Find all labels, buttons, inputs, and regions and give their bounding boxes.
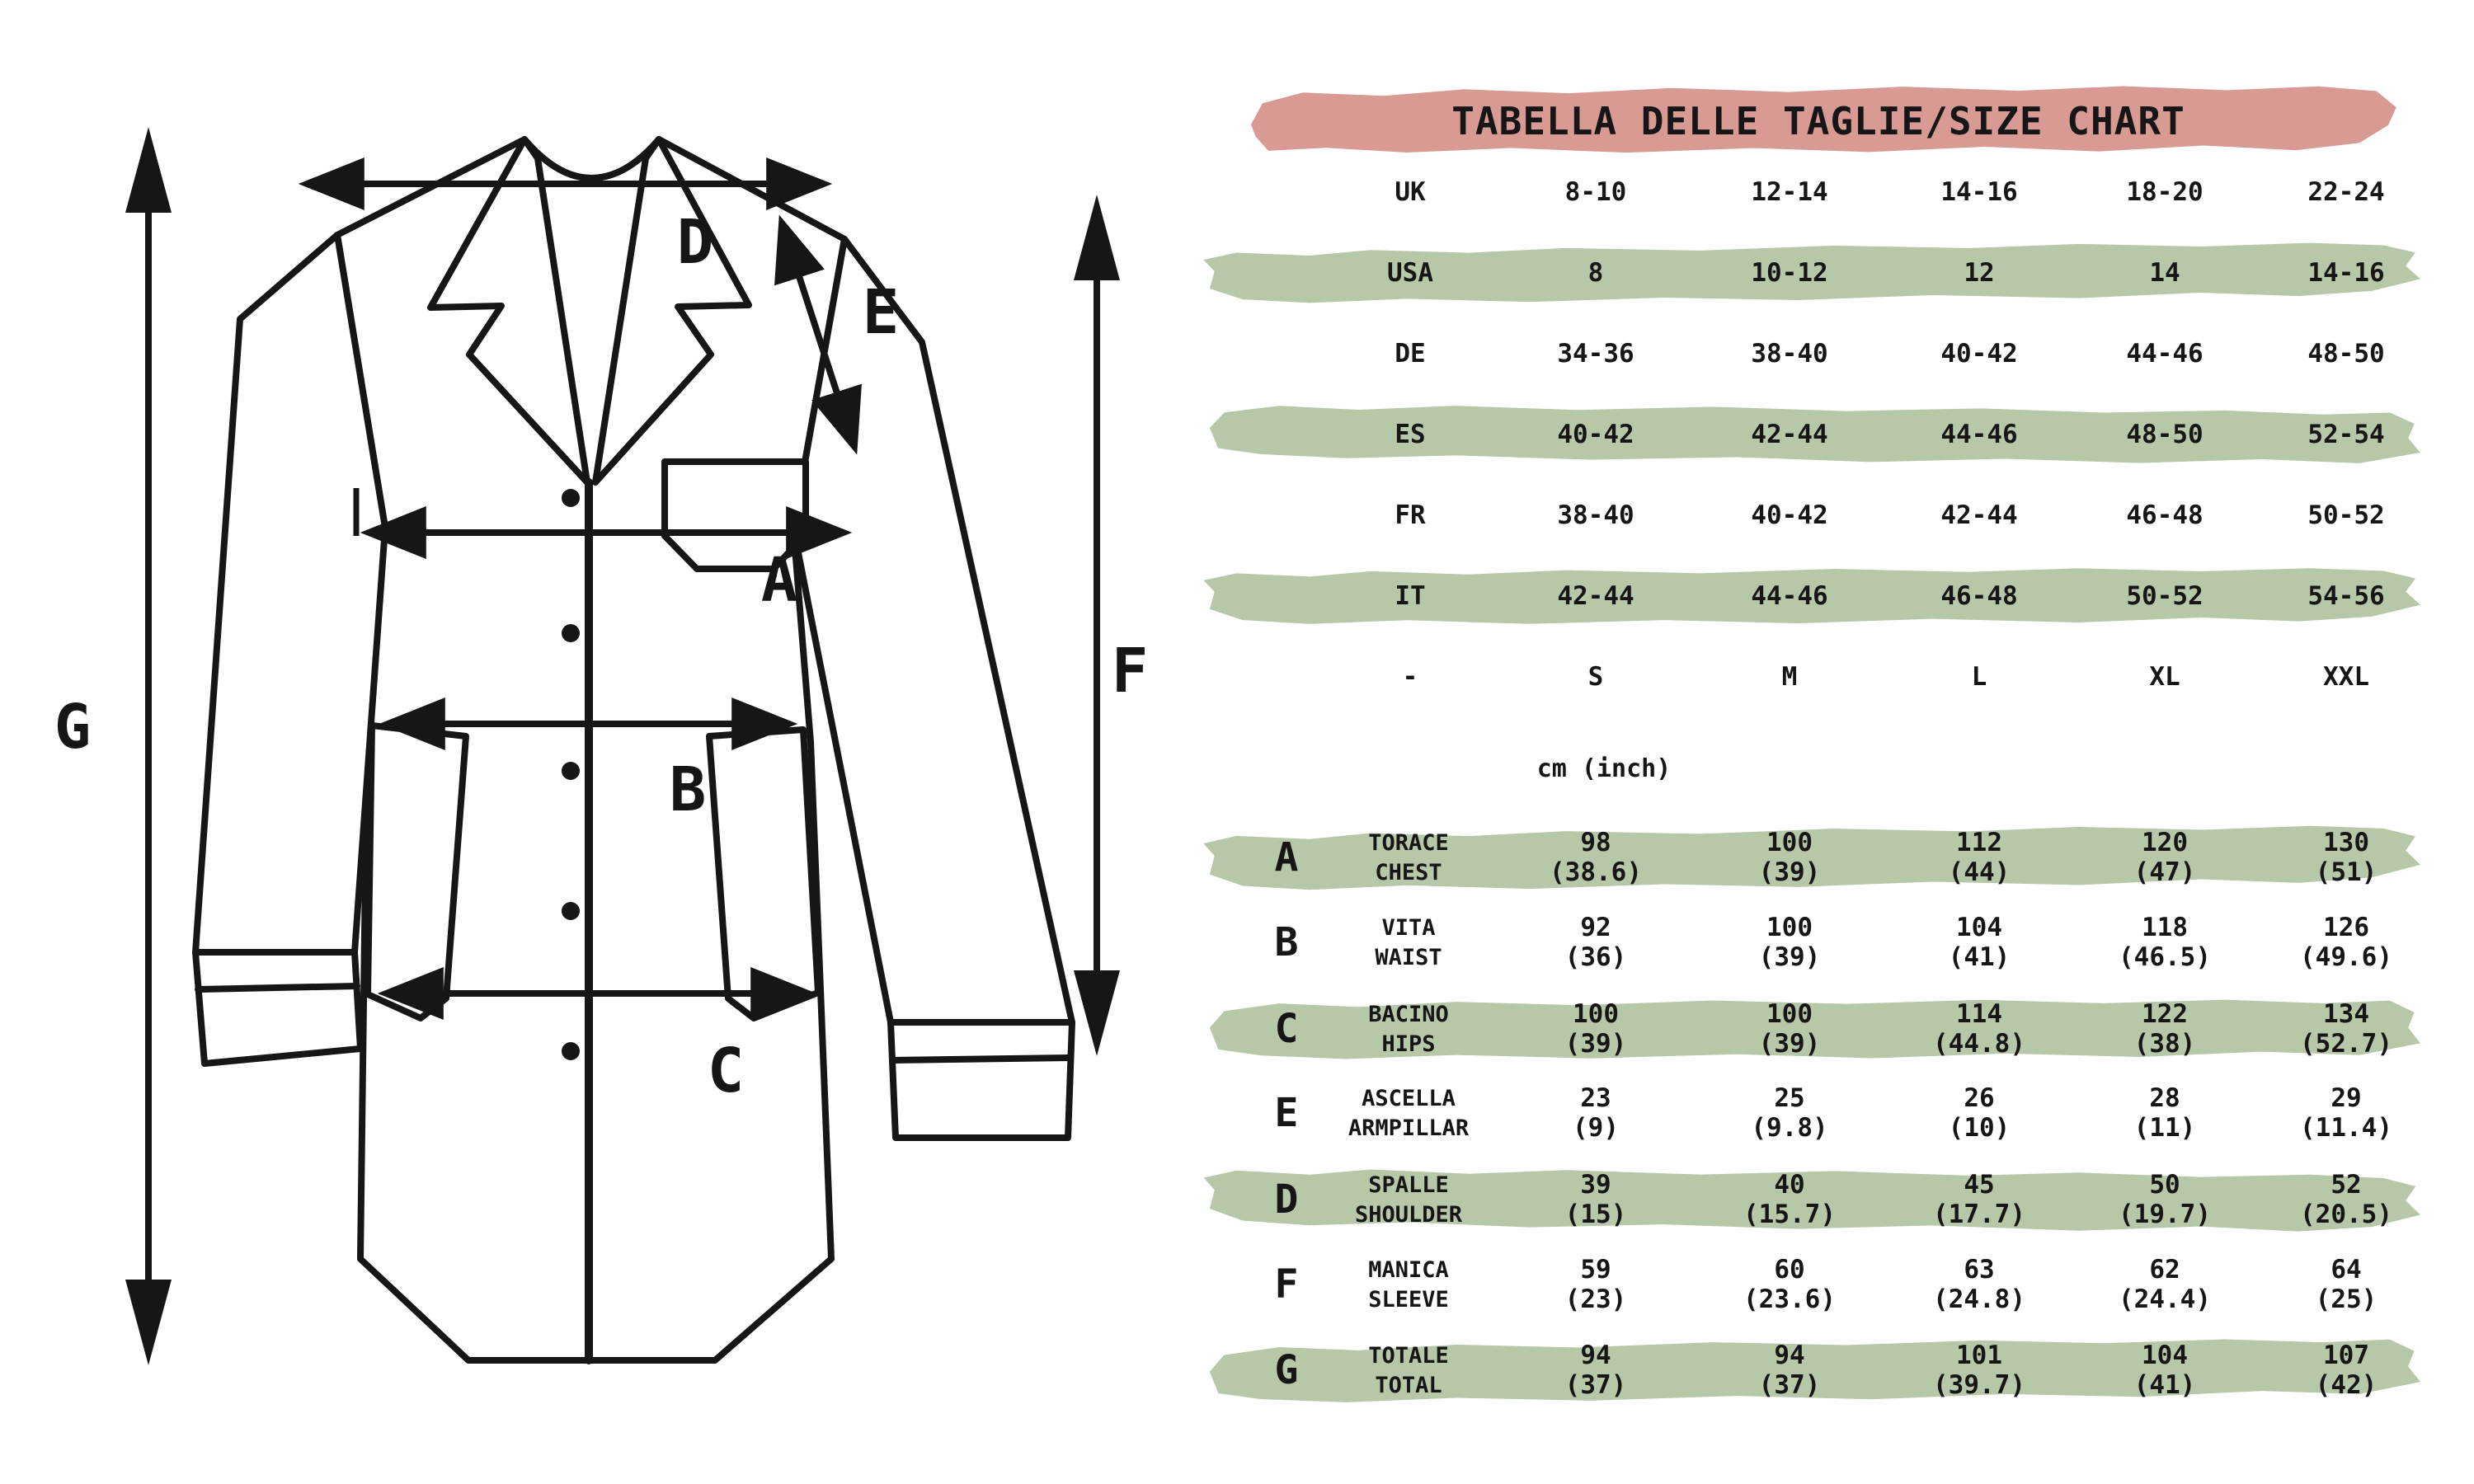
size-value: 48-50 <box>2074 405 2255 464</box>
measure-inch: (10) <box>1888 1113 2070 1144</box>
size-value: 14-16 <box>2255 243 2437 303</box>
measure-name-it: VITA <box>1326 913 1491 943</box>
size-row-label: IT <box>1344 566 1476 626</box>
garment-diagram <box>0 0 1221 1484</box>
size-value: 34-36 <box>1505 324 1686 383</box>
measure-name-en: SHOULDER <box>1326 1200 1491 1230</box>
measure-inch: (37) <box>1505 1370 1686 1401</box>
measure-inch: (11.4) <box>2255 1113 2437 1144</box>
measure-inch: (52.7) <box>2255 1029 2437 1059</box>
size-value: 42-44 <box>1505 566 1686 626</box>
size-value: XL <box>2074 647 2255 707</box>
measure-inch: (17.7) <box>1888 1200 2070 1230</box>
size-row-label: DE <box>1344 324 1476 383</box>
size-value: 44-46 <box>1699 566 1880 626</box>
measure-name-en: ARMPILLAR <box>1326 1113 1491 1144</box>
size-chart-panel: TABELLA DELLE TAGLIE/SIZE CHART UK 8-10 … <box>1188 0 2474 1484</box>
size-value: 38-40 <box>1505 486 1686 545</box>
measure-cm: 100 <box>1699 828 1880 858</box>
measure-cm: 107 <box>2255 1341 2437 1371</box>
button <box>562 902 580 920</box>
size-value: 40-42 <box>1505 405 1686 464</box>
measure-cm: 26 <box>1888 1083 2070 1114</box>
measure-inch: (23) <box>1505 1284 1686 1315</box>
diagram-label-D: D <box>656 204 735 280</box>
measure-inch: (39.7) <box>1888 1370 2070 1401</box>
button <box>562 489 580 507</box>
size-value: 44-46 <box>2074 324 2255 383</box>
measure-inch: (41) <box>2074 1370 2255 1401</box>
measure-inch: (41) <box>1888 942 2070 973</box>
measure-inch: (44.8) <box>1888 1029 2070 1059</box>
measure-cm: 28 <box>2074 1083 2255 1114</box>
measure-inch: (9.8) <box>1699 1113 1880 1144</box>
measure-name-it: TORACE <box>1326 828 1491 858</box>
size-row-uk: UK 8-10 12-14 14-16 18-20 22-24 <box>1188 162 2474 222</box>
measure-name-it: TOTALE <box>1326 1341 1491 1371</box>
chart-title: TABELLA DELLE TAGLIE/SIZE CHART <box>1245 87 2392 153</box>
measure-cm: 92 <box>1505 913 1686 943</box>
diagram-label-C: C <box>686 1033 765 1109</box>
measure-row-chest: A TORACE CHEST 98(38.6) 100(39) 112(44) … <box>1188 823 2474 892</box>
measure-cm: 25 <box>1699 1083 1880 1114</box>
size-value: L <box>1888 647 2070 707</box>
size-value: 46-48 <box>1888 566 2070 626</box>
measure-cm: 120 <box>2074 828 2255 858</box>
measure-cm: 100 <box>1699 913 1880 943</box>
left-cuff-seam <box>198 986 357 989</box>
measure-inch: (36) <box>1505 942 1686 973</box>
right-sleeve <box>793 239 1072 1022</box>
measure-row-waist: B VITA WAIST 92(36) 100(39) 104(41) 118(… <box>1188 908 2474 977</box>
measure-cm: 50 <box>2074 1170 2255 1200</box>
measure-name-en: TOTAL <box>1326 1370 1491 1401</box>
measure-cm: 62 <box>2074 1255 2255 1285</box>
measure-row-armpillar: E ASCELLA ARMPILLAR 23(9) 25(9.8) 26(10)… <box>1188 1078 2474 1148</box>
measure-inch: (24.8) <box>1888 1284 2070 1315</box>
measure-inch: (11) <box>2074 1113 2255 1144</box>
diagram-label-B: B <box>648 752 727 828</box>
measure-cm: 114 <box>1888 999 2070 1030</box>
measure-inch: (38) <box>2074 1029 2255 1059</box>
measure-inch: (46.5) <box>2074 942 2255 973</box>
measure-inch: (15) <box>1505 1200 1686 1230</box>
measure-row-sleeve: F MANICA SLEEVE 59(23) 60(23.6) 63(24.8)… <box>1188 1250 2474 1319</box>
measure-cm: 122 <box>2074 999 2255 1030</box>
measure-name-it: SPALLE <box>1326 1170 1491 1200</box>
size-row-label: ES <box>1344 405 1476 464</box>
size-value: 54-56 <box>2255 566 2437 626</box>
measure-cm: 104 <box>1888 913 2070 943</box>
size-value: 42-44 <box>1699 405 1880 464</box>
measure-cm: 100 <box>1505 999 1686 1030</box>
size-value: 48-50 <box>2255 324 2437 383</box>
button <box>562 1042 580 1060</box>
size-value: 14 <box>2074 243 2255 303</box>
measure-name-en: SLEEVE <box>1326 1284 1491 1315</box>
units-label: cm (inch) <box>1513 753 1695 786</box>
measure-cm: 112 <box>1888 828 2070 858</box>
measure-cm: 98 <box>1505 828 1686 858</box>
measure-cm: 29 <box>2255 1083 2437 1114</box>
size-value: 8 <box>1505 243 1686 303</box>
left-cuff <box>195 952 360 1064</box>
measure-cm: 63 <box>1888 1255 2070 1285</box>
measure-row-hips: C BACINO HIPS 100(39) 100(39) 114(44.8) … <box>1188 994 2474 1064</box>
size-row-international: - S M L XL XXL <box>1188 647 2474 707</box>
measure-cm: 59 <box>1505 1255 1686 1285</box>
size-value: 40-42 <box>1888 324 2070 383</box>
measure-letter: F <box>1245 1250 1328 1319</box>
size-value: 52-54 <box>2255 405 2437 464</box>
measure-inch: (39) <box>1505 1029 1686 1059</box>
left-hip-pocket <box>368 726 466 1018</box>
measure-inch: (49.6) <box>2255 942 2437 973</box>
size-value: 42-44 <box>1888 486 2070 545</box>
measure-letter: B <box>1245 908 1328 977</box>
measure-inch: (47) <box>2074 857 2255 888</box>
measure-letter: G <box>1245 1336 1328 1405</box>
size-value: 50-52 <box>2255 486 2437 545</box>
size-row-fr: FR 38-40 40-42 42-44 46-48 50-52 <box>1188 486 2474 545</box>
size-value: M <box>1699 647 1880 707</box>
measure-cm: 60 <box>1699 1255 1880 1285</box>
measure-cm: 134 <box>2255 999 2437 1030</box>
size-row-usa: USA 8 10-12 12 14 14-16 <box>1188 243 2474 303</box>
size-value: 38-40 <box>1699 324 1880 383</box>
measure-cm: 23 <box>1505 1083 1686 1114</box>
size-value: 18-20 <box>2074 162 2255 222</box>
measure-inch: (20.5) <box>2255 1200 2437 1230</box>
measure-inch: (25) <box>2255 1284 2437 1315</box>
size-row-es: ES 40-42 42-44 44-46 48-50 52-54 <box>1188 405 2474 464</box>
measure-cm: 39 <box>1505 1170 1686 1200</box>
diagram-label-G: G <box>33 689 112 765</box>
size-value: 8-10 <box>1505 162 1686 222</box>
measure-name-it: MANICA <box>1326 1255 1491 1285</box>
left-sleeve <box>195 235 385 952</box>
size-value: 12-14 <box>1699 162 1880 222</box>
measure-cm: 130 <box>2255 828 2437 858</box>
diagram-label-E: E <box>841 275 920 350</box>
size-value: 44-46 <box>1888 405 2070 464</box>
measure-inch: (9) <box>1505 1113 1686 1144</box>
measure-inch: (23.6) <box>1699 1284 1880 1315</box>
size-row-label: - <box>1344 647 1476 707</box>
measure-cm: 118 <box>2074 913 2255 943</box>
measure-cm: 126 <box>2255 913 2437 943</box>
size-chart-page: G D E F A B C TABELLA DELLE TAGLIE/SIZE … <box>0 0 2474 1484</box>
measure-inch: (37) <box>1699 1370 1880 1401</box>
measure-name-en: HIPS <box>1326 1029 1491 1059</box>
size-value: 46-48 <box>2074 486 2255 545</box>
measure-row-shoulder: D SPALLE SHOULDER 39(15) 40(15.7) 45(17.… <box>1188 1165 2474 1234</box>
size-value: 22-24 <box>2255 162 2437 222</box>
size-row-label: UK <box>1344 162 1476 222</box>
measure-inch: (24.4) <box>2074 1284 2255 1315</box>
measure-cm: 104 <box>2074 1341 2255 1371</box>
size-row-it: IT 42-44 44-46 46-48 50-52 54-56 <box>1188 566 2474 626</box>
size-value: XXL <box>2255 647 2437 707</box>
size-value: 40-42 <box>1699 486 1880 545</box>
measure-inch: (39) <box>1699 857 1880 888</box>
measure-inch: (39) <box>1699 1029 1880 1059</box>
measure-cm: 64 <box>2255 1255 2437 1285</box>
measure-inch: (39) <box>1699 942 1880 973</box>
measure-name-en: WAIST <box>1326 942 1491 973</box>
measure-cm: 40 <box>1699 1170 1880 1200</box>
measure-cm: 94 <box>1505 1341 1686 1371</box>
measure-inch: (19.7) <box>2074 1200 2255 1230</box>
size-value: 12 <box>1888 243 2070 303</box>
measure-inch: (15.7) <box>1699 1200 1880 1230</box>
size-value: 10-12 <box>1699 243 1880 303</box>
measure-inch: (51) <box>2255 857 2437 888</box>
size-value: 14-16 <box>1888 162 2070 222</box>
measure-name-it: BACINO <box>1326 999 1491 1030</box>
measure-cm: 45 <box>1888 1170 2070 1200</box>
right-cuff <box>891 1022 1072 1138</box>
measure-letter: C <box>1245 994 1328 1064</box>
measure-inch: (42) <box>2255 1370 2437 1401</box>
size-row-de: DE 34-36 38-40 40-42 44-46 48-50 <box>1188 324 2474 383</box>
measure-inch: (38.6) <box>1505 857 1686 888</box>
measure-letter: A <box>1245 823 1328 892</box>
measure-cm: 100 <box>1699 999 1880 1030</box>
size-row-label: USA <box>1344 243 1476 303</box>
measure-cm: 94 <box>1699 1341 1880 1371</box>
measure-inch: (44) <box>1888 857 2070 888</box>
diagram-label-F: F <box>1090 633 1169 709</box>
measure-name-it: ASCELLA <box>1326 1083 1491 1114</box>
button <box>562 762 580 780</box>
right-cuff-seam <box>893 1058 1070 1060</box>
measure-row-total: G TOTALE TOTAL 94(37) 94(37) 101(39.7) 1… <box>1188 1336 2474 1405</box>
measure-letter: E <box>1245 1078 1328 1148</box>
size-value: 50-52 <box>2074 566 2255 626</box>
size-row-label: FR <box>1344 486 1476 545</box>
size-value: S <box>1505 647 1686 707</box>
measure-letter: D <box>1245 1165 1328 1234</box>
measure-name-en: CHEST <box>1326 857 1491 888</box>
measure-cm: 52 <box>2255 1170 2437 1200</box>
diagram-label-A: A <box>740 542 819 618</box>
measure-cm: 101 <box>1888 1341 2070 1371</box>
button <box>562 624 580 642</box>
